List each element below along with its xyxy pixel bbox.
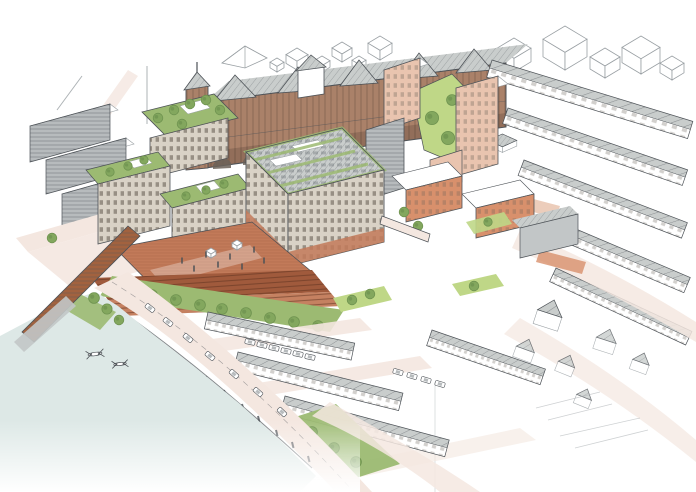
- tree: [124, 162, 132, 170]
- tree: [106, 168, 114, 176]
- tree: [241, 308, 252, 319]
- tree: [220, 180, 228, 188]
- tree: [114, 315, 124, 325]
- tree: [399, 207, 409, 217]
- tree: [102, 304, 112, 314]
- tree: [185, 99, 195, 109]
- masterplan-canvas: [0, 0, 696, 492]
- tree: [89, 293, 100, 304]
- tree: [177, 119, 187, 129]
- tree: [140, 156, 148, 164]
- tree: [47, 233, 57, 243]
- tree: [441, 131, 454, 144]
- tree: [215, 105, 225, 115]
- tree: [469, 281, 479, 291]
- tree: [289, 317, 300, 328]
- tree: [217, 304, 228, 315]
- tree: [182, 192, 190, 200]
- tree: [169, 105, 179, 115]
- tree: [484, 218, 492, 226]
- tree: [425, 111, 438, 124]
- tree: [195, 300, 206, 311]
- tree: [365, 289, 375, 299]
- tree: [201, 95, 211, 105]
- tree: [171, 295, 182, 306]
- tree: [153, 113, 163, 123]
- tree: [202, 186, 210, 194]
- river-fade: [0, 420, 360, 492]
- tree: [347, 295, 357, 305]
- masterplan-illustration: [0, 0, 696, 492]
- tree: [265, 313, 276, 324]
